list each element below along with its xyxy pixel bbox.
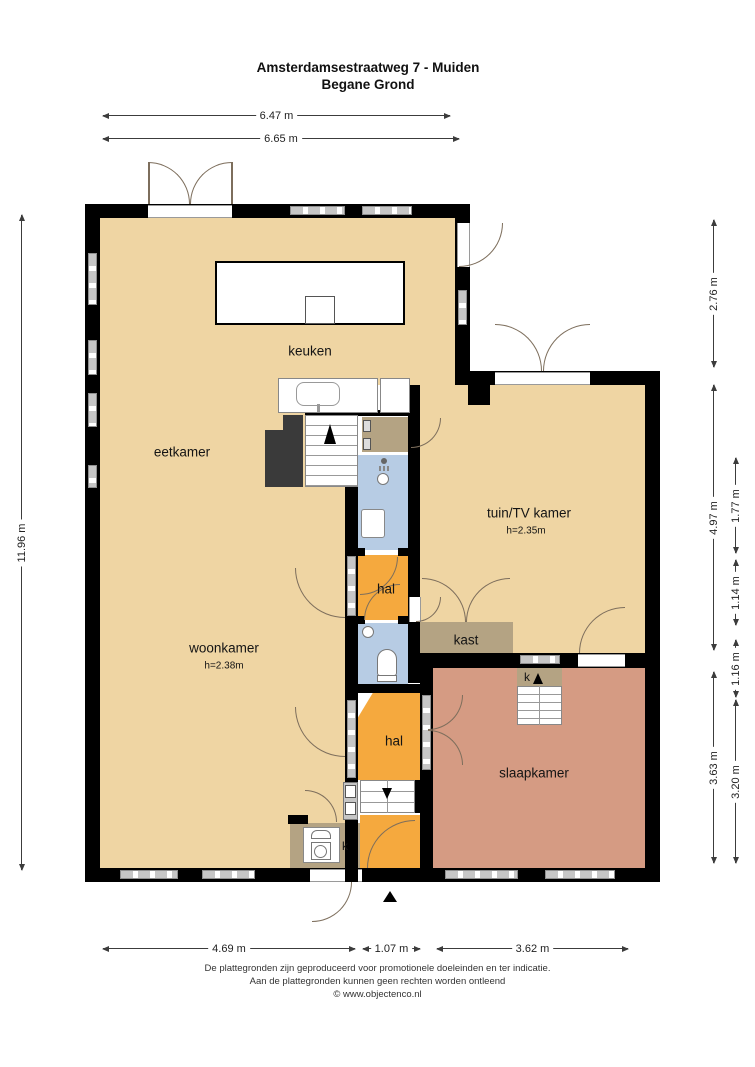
opening-top-double-door — [148, 205, 232, 218]
dim-right-497: 4.97 m — [713, 385, 714, 650]
window-hal2-left — [347, 700, 356, 778]
sink-icon — [296, 382, 340, 406]
label-slaapkamer: slaapkamer — [499, 766, 569, 781]
label-kast: kast — [454, 633, 479, 648]
dim-label: 3.63 m — [708, 747, 720, 789]
wall-toilet-hal2 — [345, 684, 420, 693]
dim-bottom-107: 1.07 m — [363, 948, 420, 949]
dim-right-116: 1.16 m — [735, 640, 736, 697]
entry-steps-down-arrow-icon — [382, 788, 392, 799]
label-hal1: hal — [377, 582, 395, 597]
dim-label: 6.47 m — [256, 110, 298, 122]
window-bottom-2 — [202, 870, 255, 879]
disclaimer-line-1: De plattegronden zijn geproduceerd voor … — [0, 963, 755, 976]
entrance-marker-icon — [383, 891, 397, 902]
label-keuken: keuken — [288, 344, 332, 359]
label-k-closet: k — [524, 670, 530, 684]
boiler-icon — [363, 420, 371, 432]
window-bottom-3 — [445, 870, 518, 879]
floorplan-page: Amsterdamsestraatweg 7 - Muiden Begane G… — [0, 0, 755, 1067]
label-woonkamer: woonkamer — [189, 641, 259, 656]
wall-bad-hal1-b — [398, 548, 420, 556]
shower-head-icon — [381, 458, 387, 464]
top-door-left-swing — [148, 162, 190, 204]
opening-tuin-double-door — [495, 372, 590, 385]
opening-slaap-tuin-door — [578, 654, 625, 667]
toilet-cistern-icon — [377, 675, 397, 682]
dim-left-1196: 11.96 m — [21, 215, 22, 870]
cv-unit-icon — [363, 438, 371, 450]
dim-right-114: 1.14 m — [735, 560, 736, 625]
label-eetkamer: eetkamer — [154, 445, 210, 460]
wall-right — [645, 371, 660, 882]
dim-label: 4.69 m — [208, 943, 250, 955]
toilet-icon — [377, 649, 397, 676]
dryer-icon — [311, 830, 331, 839]
window-left-4 — [88, 465, 97, 488]
disclaimer-line-2: Aan de plattegronden kunnen geen rechten… — [0, 976, 755, 989]
title-floor: Begane Grond — [60, 77, 676, 94]
label-k-room: k — [342, 839, 348, 853]
tuin-door-right-swing — [543, 324, 590, 371]
window-left-2 — [88, 340, 97, 375]
dim-bottom-362: 3.62 m — [437, 948, 628, 949]
top-door-right-swing — [190, 162, 232, 204]
window-keuken-right — [458, 290, 467, 325]
washbasin-toilet-icon — [362, 626, 374, 638]
dim-label: 3.62 m — [512, 943, 554, 955]
dim-right-320: 3.20 m — [735, 700, 736, 863]
front-door-outer-swing — [312, 882, 352, 922]
meter-box-2 — [345, 802, 356, 815]
washbasin-bad-icon — [377, 473, 389, 485]
top-door-right-leaf — [231, 162, 233, 204]
window-left-3 — [88, 393, 97, 427]
window-left-1 — [88, 253, 97, 305]
slaap-stairs-up-arrow-icon — [533, 673, 543, 684]
dim-label: 1.16 m — [730, 648, 742, 690]
dim-label: 11.96 m — [16, 519, 28, 566]
dim-right-276: 2.76 m — [713, 220, 714, 367]
tuin-door-left-swing — [495, 324, 542, 371]
dim-label: 2.76 m — [708, 273, 720, 315]
shower-spray-icon — [379, 466, 389, 471]
cooktop-icon — [305, 296, 335, 324]
window-bottom-4 — [545, 870, 615, 879]
label-tuin-tv-kamer: tuin/TV kamer — [487, 506, 571, 521]
meter-box-1 — [345, 785, 356, 798]
dim-right-177: 1.77 m — [735, 458, 736, 553]
dim-right-363: 3.63 m — [713, 672, 714, 863]
chimney-block-2 — [265, 430, 283, 487]
wall-corner-step — [468, 385, 490, 405]
copyright-line: © www.objectenco.nl — [0, 989, 755, 1002]
window-bottom-1 — [120, 870, 178, 879]
wall-hal1-toilet-a — [345, 616, 365, 624]
stairs-up-arrow-icon — [324, 424, 336, 444]
dim-label: 1.07 m — [371, 943, 413, 955]
sink-faucet-icon — [317, 404, 320, 412]
top-door-left-leaf — [148, 162, 150, 204]
dim-label: 3.20 m — [730, 761, 742, 803]
shower-tray-icon — [361, 509, 385, 538]
dim-label: 6.65 m — [260, 133, 302, 145]
chimney-block — [283, 415, 303, 487]
wall-left — [85, 204, 100, 882]
wall-top — [85, 204, 470, 218]
window-top-1 — [290, 206, 345, 215]
dim-label: 1.14 m — [730, 572, 742, 614]
dim-label: 4.97 m — [708, 497, 720, 539]
window-hal1-left — [347, 556, 356, 616]
dim-label: 1.77 m — [730, 485, 742, 527]
dim-bottom-469: 4.69 m — [103, 948, 355, 949]
window-slaap-tuin — [520, 655, 560, 664]
dim-top-647: 6.47 m — [103, 115, 450, 116]
wall-bad-hal1-a — [345, 548, 365, 556]
page-title: Amsterdamsestraatweg 7 - Muiden Begane G… — [60, 60, 676, 94]
slaap-stairs-centerline — [539, 686, 540, 725]
dim-top-665: 6.65 m — [103, 138, 459, 139]
window-top-2 — [362, 206, 412, 215]
label-tuin-height: h=2.35m — [506, 526, 545, 537]
washer-drum-icon — [314, 845, 327, 858]
title-address: Amsterdamsestraatweg 7 - Muiden — [60, 60, 676, 77]
disclaimer: De plattegronden zijn geproduceerd voor … — [0, 963, 755, 1001]
keuken-side-door-swing — [459, 223, 503, 267]
label-hal2: hal — [385, 734, 403, 749]
wall-entry-right — [415, 780, 433, 813]
counter-cupboard — [380, 378, 410, 413]
label-woonkamer-height: h=2.38m — [204, 661, 243, 672]
